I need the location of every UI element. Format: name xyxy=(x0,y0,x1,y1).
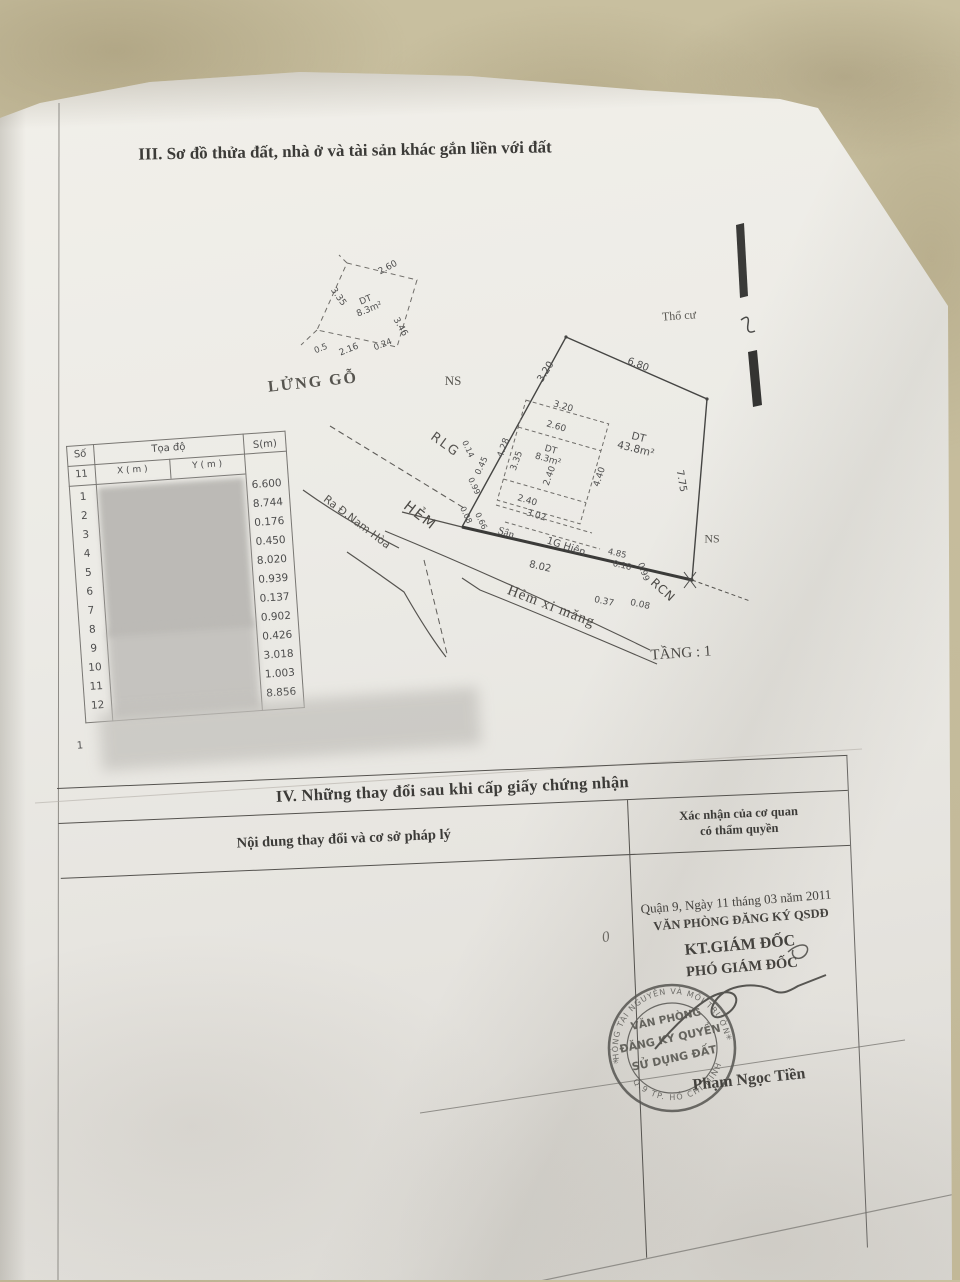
ct-row-no: 12 xyxy=(84,698,112,712)
ct-row-s: 0.939 xyxy=(252,571,294,586)
section4-col-confirm-header: Xác nhận của cơ quan có thẩm quyền xyxy=(628,791,850,854)
ct-row-s: 0.450 xyxy=(250,534,292,549)
ct-row-s: 1.003 xyxy=(259,666,301,681)
ct-row-no: 10 xyxy=(81,661,109,675)
ct-col-no-header: Số xyxy=(66,448,94,461)
ct-col-s-header: S(m) xyxy=(243,438,287,452)
ct-row-s: 3.018 xyxy=(258,647,300,662)
ct-row-no: 6 xyxy=(76,585,104,599)
ct-row-no: 11 xyxy=(82,680,110,694)
ct-row-s: 0.137 xyxy=(254,590,296,605)
north-arrow-icon xyxy=(736,223,762,407)
ct-col-y-header: Y ( m ) xyxy=(169,458,245,473)
ct-col-no2-header: 11 xyxy=(68,468,96,481)
ns-right-label: NS xyxy=(704,532,719,547)
ct-row-no: 9 xyxy=(80,642,108,656)
ct-footer-no: 1 xyxy=(76,740,83,751)
ct-row-s: 0.426 xyxy=(256,628,298,643)
ct-row-s: 8.020 xyxy=(251,552,293,567)
ct-row-s: 0.902 xyxy=(255,609,297,624)
section4-content-cell xyxy=(61,855,647,1282)
paper-sheet: III. Sơ đồ thửa đất, nhà ở và tài sản kh… xyxy=(0,0,960,1280)
section4-table: IV. Những thay đổi sau khi cấp giấy chứn… xyxy=(57,755,868,1281)
page-left-border xyxy=(58,103,59,1280)
ct-row-no: 8 xyxy=(78,623,106,637)
ct-row-no: 2 xyxy=(71,509,99,523)
ct-row-s: 8.744 xyxy=(247,496,289,511)
ct-col-x-header: X ( m ) xyxy=(95,463,171,478)
ct-row-no: 5 xyxy=(75,566,103,580)
ct-row-no: 7 xyxy=(77,604,105,618)
ct-row-s: 8.856 xyxy=(260,685,302,700)
coordinate-table: Số 11 Tọa độ X ( m ) Y ( m ) S(m) 16.600… xyxy=(66,431,305,724)
redaction-blur xyxy=(98,478,254,638)
ct-row-s: 6.600 xyxy=(246,477,288,492)
ct-row-s: 0.176 xyxy=(248,515,290,530)
ct-row-no: 3 xyxy=(72,528,100,542)
ns-left-label: NS xyxy=(445,373,462,389)
dashed-alley-edge xyxy=(424,560,447,654)
tho-cu-label: Thổ cư xyxy=(661,307,696,324)
ct-row-no: 4 xyxy=(73,547,101,561)
ct-row-no: 1 xyxy=(69,490,97,504)
confirm-header-line2: có thẩm quyền xyxy=(700,821,779,840)
